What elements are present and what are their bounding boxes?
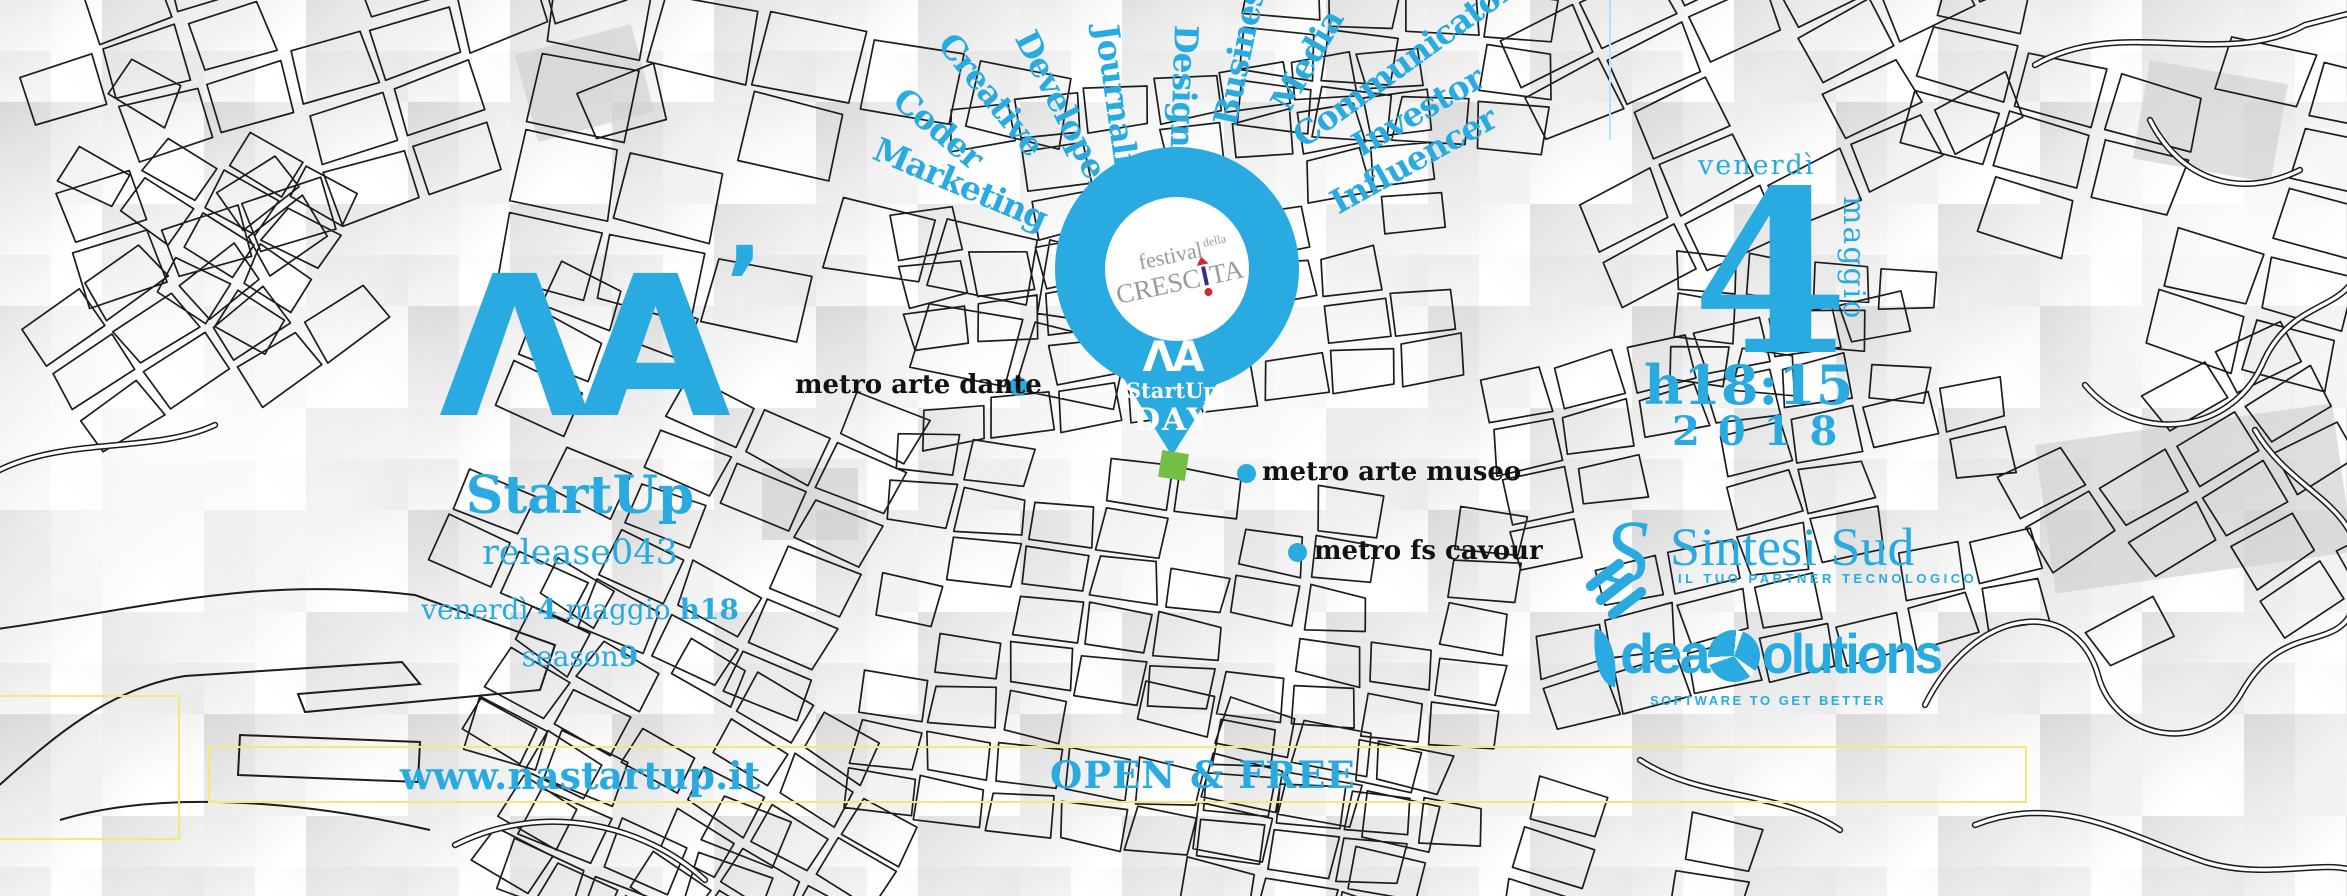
website-url[interactable]: www.nastartup.it [380, 757, 780, 795]
month-label: maggio [1838, 196, 1868, 320]
pin-day-label: DAY [1092, 405, 1252, 436]
pin-startup-label: StartUp [1092, 380, 1252, 401]
year-label: 2018 [1672, 412, 1855, 452]
ideasolutions-name-prefix: dea [1620, 626, 1708, 682]
startup-title: StartUp [380, 470, 780, 522]
sintesi-sud-name: Sintesi Sud [1670, 520, 1915, 574]
festival-crescita-logo: festivaldella CRESCTA [1092, 184, 1263, 355]
open-free-label: OPEN & FREE [1050, 757, 1356, 794]
logo-apostrophe: ’ [725, 234, 763, 334]
nastartup-logo: ΛA’ [380, 248, 780, 460]
ideasolutions-name-suffix: olutions [1762, 626, 1940, 682]
ideasolutions-tagline: SOFTWARE TO GET BETTER [1650, 694, 1886, 707]
pin-caption: ΛA’ StartUp DAY [1092, 336, 1252, 436]
event-date-line: venerdì 4 maggio h18 [380, 596, 780, 624]
metro-label-cavour: metro fs cavour [1314, 538, 1543, 564]
ideasolutions-s-icon [1708, 630, 1760, 682]
sintesi-sud-tagline: IL TUO PARTNER TECNOLOGICO [1678, 572, 1977, 585]
season-label: season9 [380, 643, 780, 671]
branding-block: ΛA’ StartUp release043 venerdì 4 maggio … [380, 248, 780, 671]
festival-crescita-della: della [1201, 231, 1227, 250]
time-label: h18:15 [1644, 358, 1854, 412]
metro-label-dante: metro arte dante [795, 372, 1042, 398]
venue-marker-icon [1158, 450, 1189, 481]
metro-station-dot-icon [1288, 543, 1307, 562]
event-poster: Marketing Coder Creative Developer Journ… [0, 0, 2347, 896]
metro-label-museo: metro arte museo [1262, 459, 1521, 485]
blue-hairline [1609, 0, 1611, 140]
metro-station-dot-icon [1237, 464, 1256, 483]
yellow-frame-left [0, 695, 180, 840]
logo-apostrophe: ’ [1196, 324, 1206, 350]
nastartup-logo-small: ΛA’ [1142, 336, 1201, 378]
release-label: release043 [380, 536, 780, 571]
